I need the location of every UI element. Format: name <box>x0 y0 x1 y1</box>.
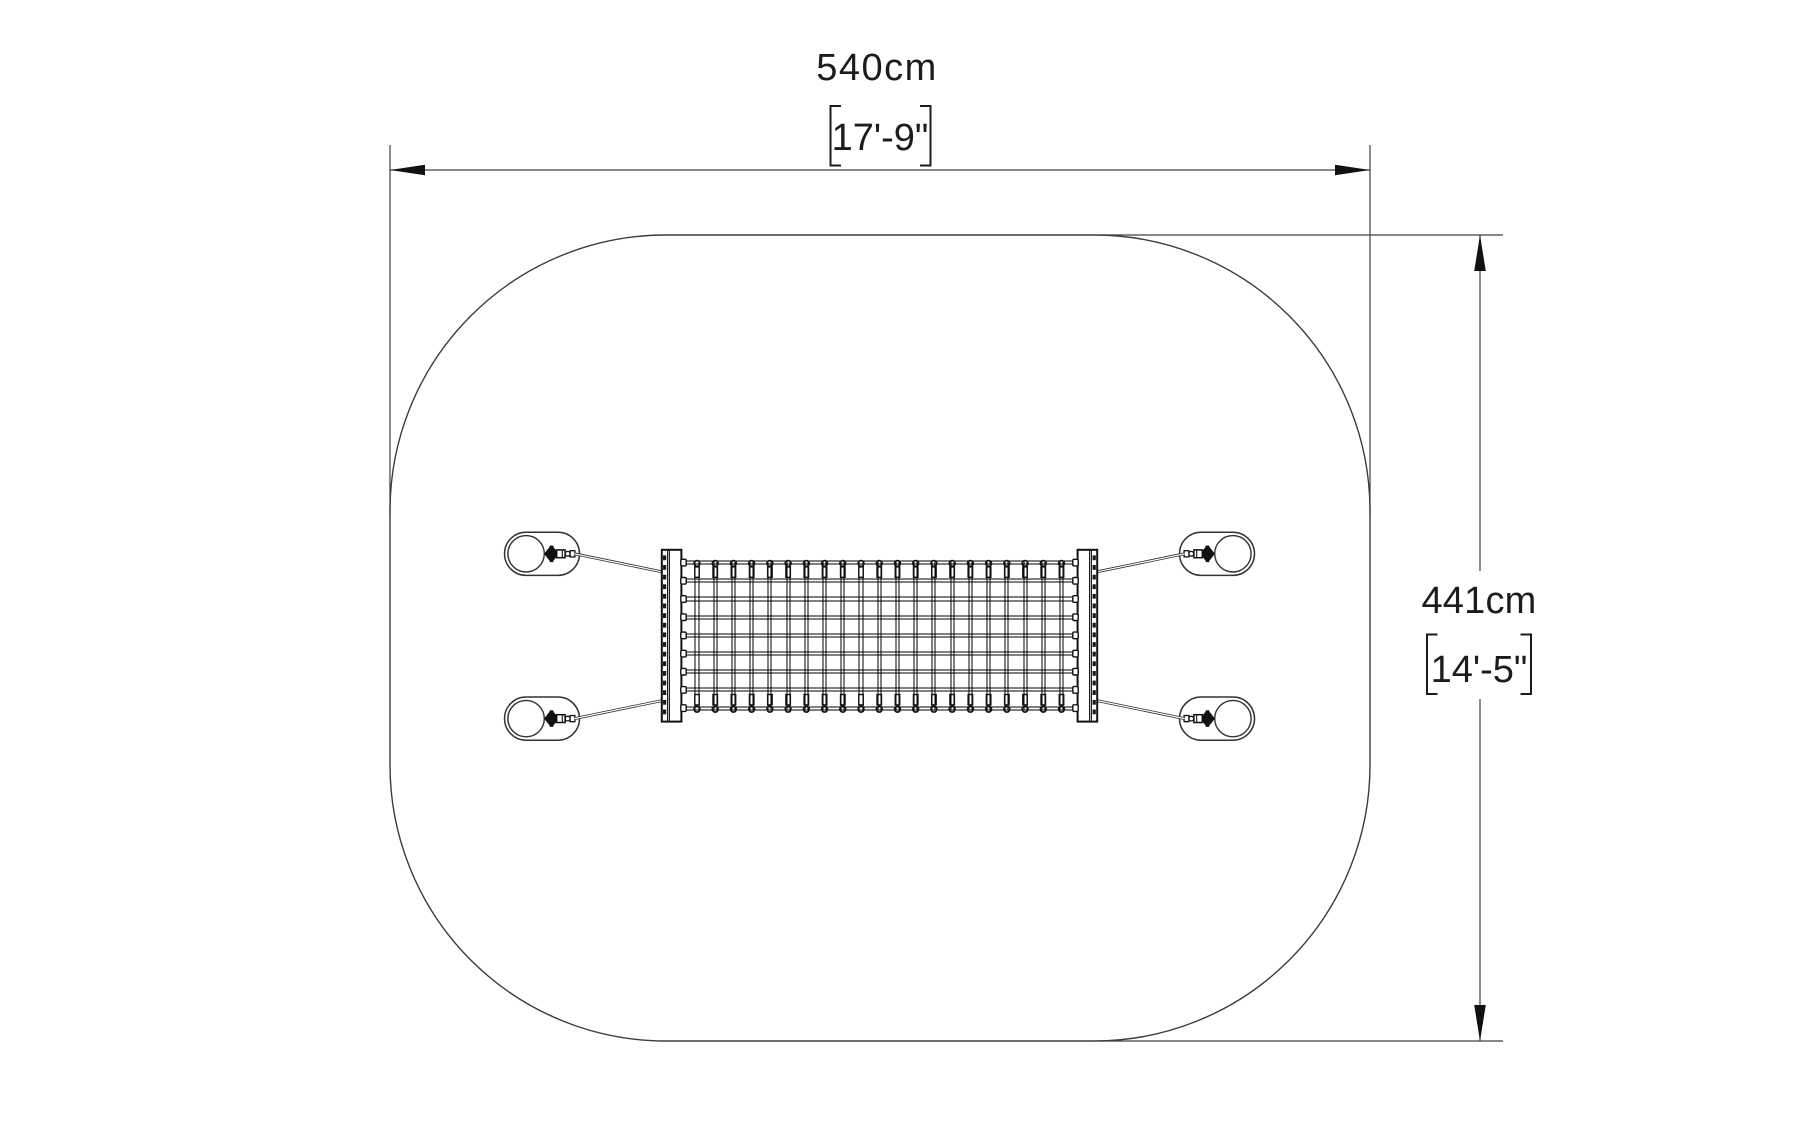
svg-text:17'-9": 17'-9" <box>832 117 929 159</box>
svg-text:540cm: 540cm <box>816 47 938 89</box>
svg-text:14'-5": 14'-5" <box>1431 649 1528 691</box>
svg-text:441cm: 441cm <box>1421 580 1536 622</box>
